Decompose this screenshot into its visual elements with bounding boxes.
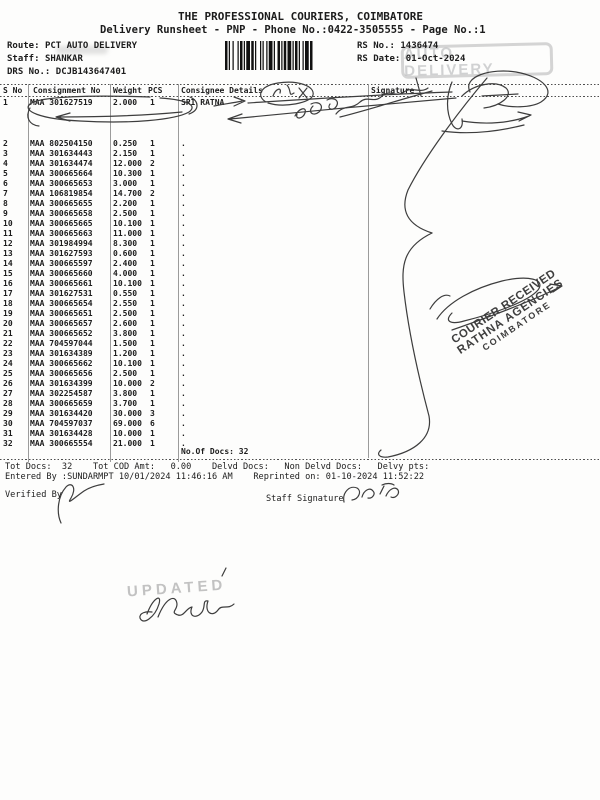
row-pcs: 2 — [150, 379, 155, 388]
row-consignee: . — [181, 239, 186, 248]
row-consignment: MAA 300665658 — [30, 209, 93, 218]
row-pcs: 3 — [150, 409, 155, 418]
row-sno: 29 — [3, 409, 13, 418]
updated-stamp: UPDATED — [127, 577, 227, 601]
row-weight: 0.250 — [113, 139, 137, 148]
table-row: 8MAA 3006656552.2001. — [0, 199, 600, 209]
table-row: 22MAA 7045970441.5001. — [0, 339, 600, 349]
table-row: 16MAA 30066566110.1001. — [0, 279, 600, 289]
row-consignment: MAA 301634399 — [30, 379, 93, 388]
row-weight: 2.500 — [113, 209, 137, 218]
handwritten-staff-signature — [344, 484, 399, 503]
row-pcs: 1 — [150, 359, 155, 368]
table-row: 5MAA 30066566410.3001. — [0, 169, 600, 179]
row-consignment: MAA 300665597 — [30, 259, 93, 268]
row-pcs: 1 — [150, 98, 155, 107]
table-row: 30MAA 70459703769.0006. — [0, 419, 600, 429]
row-consignee: . — [181, 329, 186, 338]
row-weight: 3.000 — [113, 179, 137, 188]
row-sno: 5 — [3, 169, 8, 178]
handwritten-bl-arrow — [462, 112, 531, 123]
row-consignee: . — [181, 169, 186, 178]
runsheet-document: THE PROFESSIONAL COURIERS, COIMBATORE De… — [0, 0, 600, 800]
drs-line: DRS No.: DCJB143647401 — [7, 67, 126, 77]
row-weight: 0.600 — [113, 249, 137, 258]
row-sno: 32 — [3, 439, 13, 448]
row-pcs: 1 — [150, 179, 155, 188]
row-sno: 10 — [3, 219, 13, 228]
row-weight: 10.100 — [113, 359, 142, 368]
row-consignee: . — [181, 259, 186, 268]
row-sno: 11 — [3, 229, 13, 238]
row-consignment: MAA 300665656 — [30, 369, 93, 378]
row-pcs: 1 — [150, 289, 155, 298]
row-consignee: . — [181, 429, 186, 438]
row-consignee: . — [181, 409, 186, 418]
route-line: Route: PCT AUTO DELIVERY — [7, 41, 137, 51]
row-consignee: . — [181, 339, 186, 348]
row-sno: 6 — [3, 179, 8, 188]
row-pcs: 1 — [150, 349, 155, 358]
row-consignment: MAA 301634389 — [30, 349, 93, 358]
table-row: 10MAA 30066566510.1001. — [0, 219, 600, 229]
table-top-rule — [0, 84, 600, 85]
row-pcs: 1 — [150, 209, 155, 218]
handwritten-inner-arrow — [56, 112, 182, 121]
row-sno: 26 — [3, 379, 13, 388]
table-row: 23MAA 3016343891.2001. — [0, 349, 600, 359]
row-consignee: . — [181, 199, 186, 208]
row-pcs: 1 — [150, 139, 155, 148]
row-weight: 2.000 — [113, 98, 137, 107]
col-header-pcs: PCS — [148, 86, 162, 95]
company-title: THE PROFESSIONAL COURIERS, COIMBATORE — [178, 10, 423, 23]
row-consignee: . — [181, 219, 186, 228]
row-pcs: 1 — [150, 309, 155, 318]
row-consignment: MAA 301634474 — [30, 159, 93, 168]
row-consignment: MAA 300665664 — [30, 169, 93, 178]
row-consignment: MAA 300665662 — [30, 359, 93, 368]
col-header-sno: S No — [3, 86, 22, 95]
handwritten-circle-tail — [28, 108, 39, 126]
row-consignment: MAA 300665655 — [30, 199, 93, 208]
row-sno: 30 — [3, 419, 13, 428]
row-consignee: . — [181, 249, 186, 258]
row-consignment: MAA 300665653 — [30, 179, 93, 188]
row-pcs: 1 — [150, 169, 155, 178]
staff-line: Staff: SHANKAR — [7, 54, 83, 64]
row-sno: 12 — [3, 239, 13, 248]
row-consignment: MAA 300665663 — [30, 229, 93, 238]
table-row: 27MAA 3022545873.8001. — [0, 389, 600, 399]
row-sno: 21 — [3, 329, 13, 338]
table-row: 4MAA 30163447412.0002. — [0, 159, 600, 169]
row-sno: 25 — [3, 369, 13, 378]
table-row: 14MAA 3006655972.4001. — [0, 259, 600, 269]
table-row: 15MAA 3006656604.0001. — [0, 269, 600, 279]
row-sno: 13 — [3, 249, 13, 258]
row-weight: 10.300 — [113, 169, 142, 178]
row-pcs: 1 — [150, 439, 155, 448]
entered-line: Entered By :SUNDARMPT 10/01/2024 11:46:1… — [5, 472, 424, 482]
row-consignment: MAA 704597044 — [30, 339, 93, 348]
row-pcs: 6 — [150, 419, 155, 428]
row-weight: 2.150 — [113, 149, 137, 158]
row-weight: 1.200 — [113, 349, 137, 358]
row-pcs: 1 — [150, 269, 155, 278]
row-pcs: 1 — [150, 229, 155, 238]
row-pcs: 1 — [150, 239, 155, 248]
row-weight: 30.000 — [113, 409, 142, 418]
row-weight: 2.200 — [113, 199, 137, 208]
table-row: 6MAA 3006656533.0001. — [0, 179, 600, 189]
handwritten-bl-underline — [442, 125, 524, 133]
row-sno: 20 — [3, 319, 13, 328]
row-pcs: 1 — [150, 429, 155, 438]
row-consignment: MAA 300665665 — [30, 219, 93, 228]
row-consignee: . — [181, 159, 186, 168]
table-row: 13MAA 3016275930.6001. — [0, 249, 600, 259]
row-consignee: . — [181, 189, 186, 198]
row-consignment: MAA 301634443 — [30, 149, 93, 158]
row-sno: 16 — [3, 279, 13, 288]
row-consignee: . — [181, 419, 186, 428]
row-pcs: 1 — [150, 389, 155, 398]
table-row: 1MAA 3016275192.0001SRI RATNA — [0, 98, 600, 108]
row-weight: 10.000 — [113, 429, 142, 438]
row-consignment: MAA 300665554 — [30, 439, 93, 448]
table-row: 29MAA 30163442030.0003. — [0, 409, 600, 419]
row-pcs: 1 — [150, 149, 155, 158]
row-pcs: 1 — [150, 399, 155, 408]
handwritten-scribble-tick — [416, 78, 421, 96]
row-sno: 28 — [3, 399, 13, 408]
row-sno: 31 — [3, 429, 13, 438]
row-pcs: 2 — [150, 189, 155, 198]
barcode — [225, 41, 339, 70]
col-header-signature: Signature — [371, 86, 414, 95]
table-row: 7MAA 10681985414.7002. — [0, 189, 600, 199]
row-consignee: . — [181, 209, 186, 218]
row-weight: 3.700 — [113, 399, 137, 408]
table-row: 32MAA 30066555421.0001. — [0, 439, 600, 449]
row-weight: 10.000 — [113, 379, 142, 388]
row-weight: 2.600 — [113, 319, 137, 328]
row-consignee: . — [181, 279, 186, 288]
row-pcs: 2 — [150, 159, 155, 168]
row-sno: 8 — [3, 199, 8, 208]
row-weight: 21.000 — [113, 439, 142, 448]
row-sno: 4 — [3, 159, 8, 168]
table-row: 11MAA 30066566311.0001. — [0, 229, 600, 239]
row-consignment: MAA 106819854 — [30, 189, 93, 198]
row-consignment: MAA 301634428 — [30, 429, 93, 438]
row-consignee: . — [181, 349, 186, 358]
col-header-consignment: Consignment No — [33, 86, 100, 95]
row-sno: 1 — [3, 98, 8, 107]
row-consignee: . — [181, 389, 186, 398]
row-consignee: . — [181, 229, 186, 238]
row-sno: 9 — [3, 209, 8, 218]
row-sno: 2 — [3, 139, 8, 148]
row-weight: 0.550 — [113, 289, 137, 298]
row-weight: 10.100 — [113, 279, 142, 288]
row-consignee: . — [181, 359, 186, 368]
table-row: 25MAA 3006656562.5001. — [0, 369, 600, 379]
runsheet-subtitle: Delivery Runsheet - PNP - Phone No.:0422… — [100, 24, 486, 36]
row-consignment: MAA 302254587 — [30, 389, 93, 398]
table-header-rule — [0, 96, 600, 97]
row-pcs: 1 — [150, 249, 155, 258]
row-pcs: 1 — [150, 369, 155, 378]
row-weight: 69.000 — [113, 419, 142, 428]
row-consignee: . — [181, 309, 186, 318]
row-consignment: MAA 301984994 — [30, 239, 93, 248]
table-row: 12MAA 3019849948.3001. — [0, 239, 600, 249]
row-weight: 2.500 — [113, 369, 137, 378]
row-sno: 18 — [3, 299, 13, 308]
row-pcs: 1 — [150, 319, 155, 328]
row-weight: 3.800 — [113, 389, 137, 398]
row-pcs: 1 — [150, 259, 155, 268]
row-pcs: 1 — [150, 219, 155, 228]
verified-by-label: Verified By — [5, 490, 62, 500]
row-consignee: . — [181, 269, 186, 278]
row-consignment: MAA 300665651 — [30, 309, 93, 318]
handwritten-updated-signature — [140, 598, 234, 621]
row-consignee: . — [181, 149, 186, 158]
row-consignee: . — [181, 179, 186, 188]
rs-date-line: RS Date: 01-Oct-2024 — [357, 54, 465, 64]
row-consignee: . — [181, 379, 186, 388]
row-sno: 3 — [3, 149, 8, 158]
row-consignment: MAA 301627593 — [30, 249, 93, 258]
row-consignment: MAA 300665660 — [30, 269, 93, 278]
handwritten-verified-signature — [58, 484, 104, 523]
row-consignment: MAA 300665657 — [30, 319, 93, 328]
row-weight: 10.100 — [113, 219, 142, 228]
table-row: 28MAA 3006656593.7001. — [0, 399, 600, 409]
row-consignment: MAA 301627531 — [30, 289, 93, 298]
table-row: 31MAA 30163442810.0001. — [0, 429, 600, 439]
row-weight: 1.500 — [113, 339, 137, 348]
row-sno: 24 — [3, 359, 13, 368]
row-consignment: MAA 802504150 — [30, 139, 93, 148]
row-sno: 7 — [3, 189, 8, 198]
row-sno: 22 — [3, 339, 13, 348]
no-of-docs: No.Of Docs: 32 — [181, 447, 248, 456]
row-consignment: MAA 300665652 — [30, 329, 93, 338]
row-sno: 27 — [3, 389, 13, 398]
row-consignee: SRI RATNA — [181, 98, 224, 107]
row-pcs: 1 — [150, 279, 155, 288]
row-sno: 17 — [3, 289, 13, 298]
row-sno: 14 — [3, 259, 13, 268]
staff-signature-label: Staff Signature — [266, 494, 344, 504]
rs-no-line: RS No.: 1436474 — [357, 41, 438, 51]
table-row: 2MAA 8025041500.2501. — [0, 139, 600, 149]
totals-line: Tot Docs: 32 Tot COD Amt: 0.00 Delvd Doc… — [5, 462, 429, 472]
row-pcs: 1 — [150, 299, 155, 308]
table-bottom-rule — [0, 459, 600, 460]
row-consignee: . — [181, 399, 186, 408]
row-weight: 2.400 — [113, 259, 137, 268]
row-consignment: MAA 300665661 — [30, 279, 93, 288]
handwritten-apostrophe — [222, 568, 226, 576]
row-weight: 8.300 — [113, 239, 137, 248]
row-consignment: MAA 300665654 — [30, 299, 93, 308]
row-pcs: 1 — [150, 339, 155, 348]
table-row: 24MAA 30066566210.1001. — [0, 359, 600, 369]
row-consignment: MAA 704597037 — [30, 419, 93, 428]
row-weight: 14.700 — [113, 189, 142, 198]
row-consignment: MAA 301634420 — [30, 409, 93, 418]
row-weight: 2.550 — [113, 299, 137, 308]
row-consignment: MAA 301627519 — [30, 98, 93, 107]
row-weight: 3.800 — [113, 329, 137, 338]
row-consignee: . — [181, 369, 186, 378]
row-sno: 19 — [3, 309, 13, 318]
row-sno: 15 — [3, 269, 13, 278]
row-weight: 4.000 — [113, 269, 137, 278]
row-consignee: . — [181, 319, 186, 328]
row-consignee: . — [181, 299, 186, 308]
table-row: 26MAA 30163439910.0002. — [0, 379, 600, 389]
row-consignment: MAA 300665659 — [30, 399, 93, 408]
row-weight: 11.000 — [113, 229, 142, 238]
col-header-consignee: Consignee Details — [181, 86, 263, 95]
table-row: 3MAA 3016344432.1501. — [0, 149, 600, 159]
table-row: 9MAA 3006656582.5001. — [0, 209, 600, 219]
row-consignee: . — [181, 139, 186, 148]
row-weight: 2.500 — [113, 309, 137, 318]
row-consignee: . — [181, 289, 186, 298]
row-pcs: 1 — [150, 199, 155, 208]
row-pcs: 1 — [150, 329, 155, 338]
col-header-weight: Weight — [113, 86, 142, 95]
row-weight: 12.000 — [113, 159, 142, 168]
row-sno: 23 — [3, 349, 13, 358]
